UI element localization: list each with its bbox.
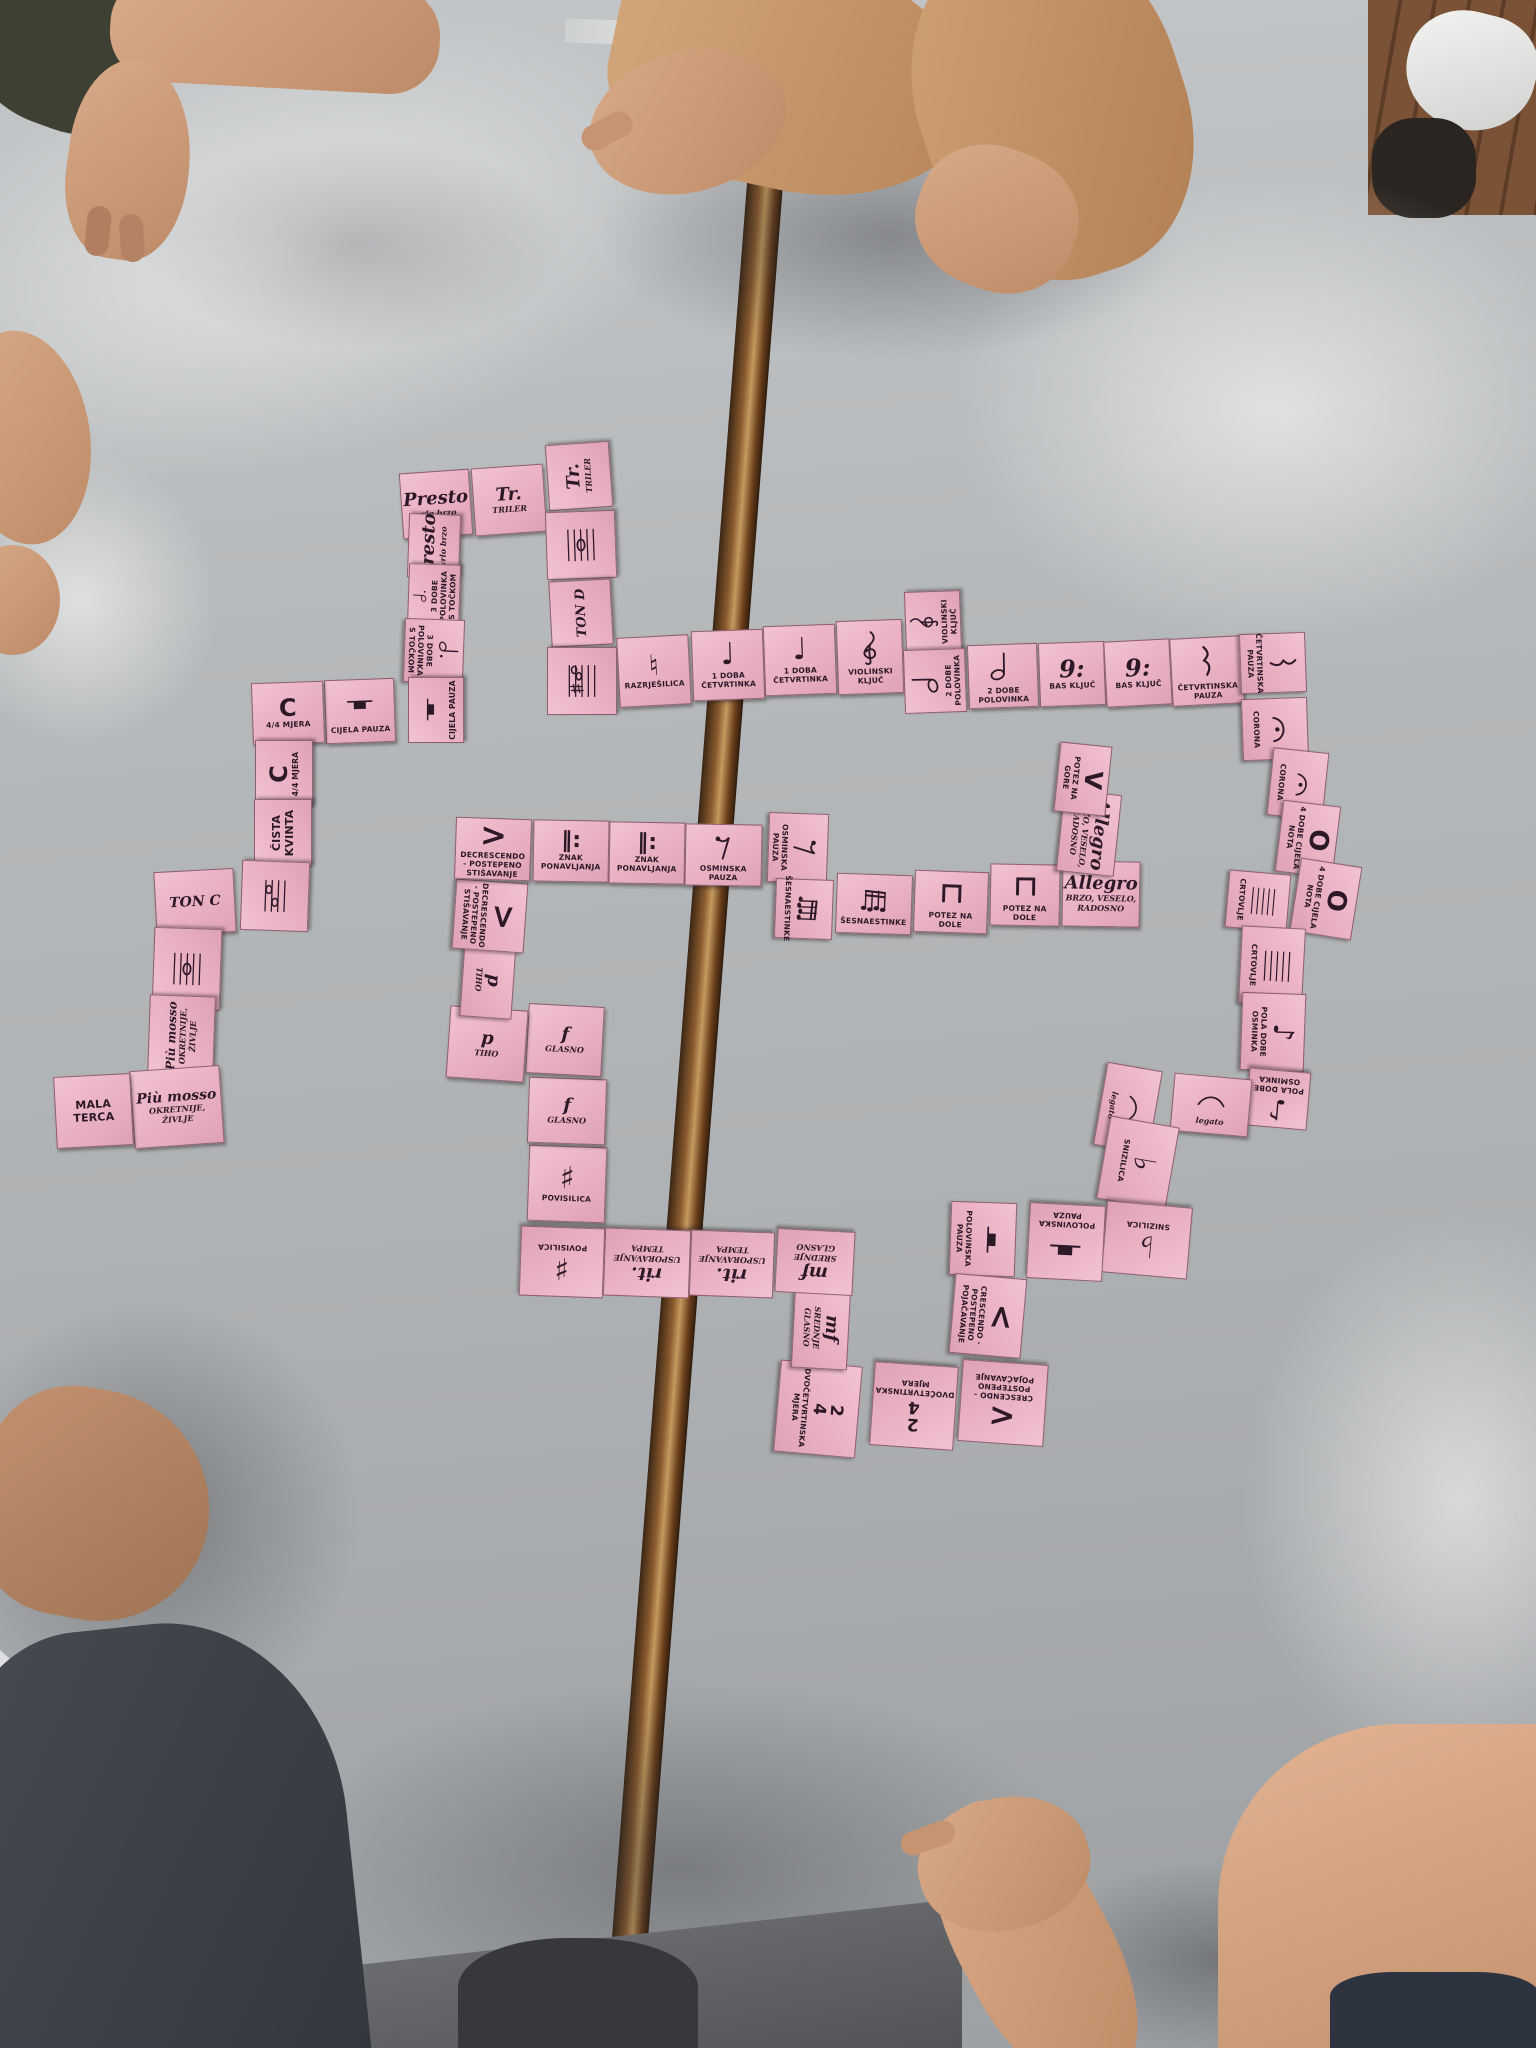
card-subtext: USPORAVANJE TEMPA (693, 1244, 772, 1265)
domino-card-sesnaestinke-2: ŠESNAESTINKE (835, 873, 913, 936)
card-label: ŠESNAESTINKE (782, 875, 793, 941)
sixteenths-icon (792, 893, 825, 926)
domino-card-povisilica-2: ♯POVISILICA (527, 1145, 608, 1224)
card-label: 3 DOBE POLOVINKA S TOČKOM (406, 621, 435, 680)
domino-card-potez-na-dole-2: POTEZ NA DOLE (989, 863, 1060, 926)
card-subtext: TIHO (474, 1048, 499, 1059)
domino-card-cetvrtinka-1: ♩1 DOBA ČETVRTINKA (691, 629, 765, 701)
card-subtext: vrlo brzo (438, 526, 449, 566)
card-label: ČETVRTINSKA PAUZA (1245, 633, 1265, 694)
quarter-note-icon: ♩ (720, 641, 735, 670)
sixteenths-icon (857, 881, 892, 916)
domino-card-mf-2: mfSREDNJE GLASNO (774, 1228, 855, 1296)
flat-icon: ♭ (1138, 1230, 1155, 1260)
domino-card-mjera-44-2: C4/4 MJERA (255, 740, 313, 808)
card-label: POTEZ NA DOLE (993, 903, 1057, 922)
fermata-icon (1262, 711, 1298, 747)
card-label: ZNAK PONAVLJANJA (612, 854, 682, 873)
card-subtext: GLASNO (545, 1044, 584, 1055)
half-rest-icon (1043, 1229, 1088, 1274)
card-label: MALA TERCA (57, 1096, 129, 1126)
card-label: SNIZILICA (1126, 1219, 1170, 1232)
two-four-icon: 24 (906, 1398, 920, 1433)
domino-card-violinski-kljuc-1: VIOLINSKI KLJUČ (836, 619, 905, 695)
domino-card-polovinska-pauza-1: POLOVINSKA PAUZA (1026, 1202, 1106, 1282)
domino-card-bas-kljuc-2: 9:BAS KLJUČ (1103, 638, 1172, 707)
domino-card-piu-mosso-2: Più mossoOKRETNIJE, ŽIVLJE (129, 1065, 224, 1149)
card-label: POVISILICA (542, 1193, 592, 1204)
domino-card-povisilica-1: ♯POVISILICA (519, 1226, 605, 1299)
card-label: ČISTA KVINTA (270, 802, 296, 864)
flat-icon: ♭ (1128, 1154, 1159, 1173)
repeat-icon: ‖: (637, 833, 657, 854)
common-time-icon: C (279, 696, 297, 719)
card-subtext: SREDNJE GLASNO (779, 1241, 852, 1263)
card-label: POLOVINSKA PAUZA (1032, 1209, 1103, 1231)
domino-card-polovinska-pauza-2: POLOVINSKA PAUZA (949, 1201, 1018, 1277)
card-term: TON D (573, 588, 589, 637)
card-term: mf (821, 1315, 840, 1343)
card-label: CIJELA PAUZA (448, 680, 457, 740)
domino-card-cista-kvinta: ČISTA KVINTA (254, 799, 312, 867)
card-subtext: legato (1195, 1116, 1224, 1128)
domino-card-bas-kljuc-1: 9:BAS KLJUČ (1038, 641, 1106, 707)
card-label: POLA DOBE OSMINKA (1251, 1074, 1308, 1097)
domino-card-sesnaestinke-1: ŠESNAESTINKE (774, 878, 834, 940)
dotted-half-icon (411, 581, 430, 611)
card-subtext: OKRETNIJE, ŽIVLJE (178, 998, 199, 1074)
domino-card-osminska-pauza-1: OSMINSKA PAUZA (684, 823, 762, 886)
domino-card-rit-2: rit.USPORAVANJE TEMPA (603, 1228, 691, 1299)
domino-card-cijela-pauza-1: CIJELA PAUZA (408, 677, 464, 743)
repeat-icon: ‖: (561, 831, 581, 852)
card-label: CRESCENDO - POSTEPENO POJAČAVANJE (963, 1371, 1045, 1404)
domino-card-cetvrtinka-2: ♩1 DOBA ČETVRTINKA (763, 624, 837, 696)
domino-card-nota-na-crtovlju-1 (545, 510, 617, 580)
card-label: VIOLINSKI KLJUČ (939, 593, 959, 650)
treble-clef-icon (907, 606, 939, 638)
domino-card-decrescendo-2: >DECRESCENDO - POSTEPENO STIŠAVANJE (454, 817, 532, 882)
card-label: RAZRJEŠILICA (624, 679, 685, 691)
sharp-icon: ♯ (554, 1253, 570, 1282)
eighth-note-icon: ♪ (1269, 1023, 1296, 1042)
card-term: rit. (716, 1264, 748, 1283)
whole-note-staff-icon (561, 525, 600, 564)
domino-card-mf-1: mfSREDNJE GLASNO (791, 1286, 851, 1371)
card-label: POTEZ NA DOLE (916, 910, 985, 930)
card-label: POVISILICA (538, 1242, 588, 1253)
domino-card-polovinka-s-tockom-2: 3 DOBE POLOVINKA S TOČKOM (403, 618, 465, 684)
domino-card-predznaci (547, 647, 617, 715)
card-label: DECRESCENDO - POSTEPENO STIŠAVANJE (459, 882, 490, 949)
domino-card-glasno-1: fGLASNO (527, 1077, 607, 1146)
card-label: BAS KLJUČ (1049, 681, 1096, 692)
card-label: ZNAK PONAVLJANJA (536, 852, 606, 871)
quarter-rest-icon (1187, 642, 1227, 682)
sharp-icon: ♯ (559, 1165, 575, 1194)
card-label: 1 DOBA ČETVRTINKA (695, 670, 762, 690)
eighth-rest-icon (790, 831, 825, 866)
card-label: 4/4 MJERA (291, 752, 300, 797)
domino-card-triler-1: Tr.TRILER (471, 464, 548, 537)
card-label: VIOLINSKI KLJUČ (840, 666, 901, 686)
photo-classroom-table: Prestovrlo brzoTr.TRILERTr.TRILERTON D♮R… (0, 0, 1536, 2048)
domino-card-triler-2: Tr.TRILER (545, 441, 613, 511)
card-label: ČETVRTINSKA PAUZA (1175, 680, 1242, 701)
domino-card-potez-na-gore: VPOTEZ NA GORE (1053, 741, 1112, 816)
domino-card-snizilica-2: ♭SNIZILICA (1101, 1200, 1193, 1279)
domino-card-cetvrtinska-pauza-2: ČETVRTINSKA PAUZA (1239, 632, 1307, 694)
domino-card-glasno-2: fGLASNO (525, 1003, 605, 1077)
card-subtext: TRILER (492, 504, 527, 516)
domino-card-znak-ponavljanja-1: ‖:ZNAK PONAVLJANJA (532, 819, 609, 882)
card-subtext: TIHO (473, 967, 484, 992)
domino-card-crtovlje-1: CRTOVLJE (1225, 869, 1292, 932)
whole-note-icon: O (1321, 888, 1349, 914)
card-subtext: USPORAVANJE TEMPA (607, 1243, 688, 1264)
card-label: ŠESNAESTINKE (840, 916, 906, 927)
cards-layer: Prestovrlo brzoTr.TRILERTr.TRILERTON D♮R… (0, 0, 1536, 2048)
card-label: 2 DOBE POLOVINKA (943, 651, 963, 710)
domino-card-mjera-44-1: C4/4 MJERA (251, 681, 325, 745)
bass-clef-icon: 9: (1059, 657, 1085, 681)
domino-card-osminka-1: ♪POLA DOBE OSMINKA (1240, 992, 1307, 1072)
half-note-icon (984, 648, 1021, 685)
card-label: DECRESCENDO - POSTEPENO STIŠAVANJE (457, 850, 528, 879)
card-label: CIJELA PAUZA (331, 724, 391, 735)
card-label: DVOČETVRTINSKA MJERA (788, 1364, 813, 1451)
card-subtext: GLASNO (547, 1115, 586, 1126)
domino-card-dvocetvrtinska-mjera-2: 24DVOČETVRTINSKA MJERA (773, 1360, 863, 1459)
staff-icon (1246, 884, 1281, 919)
domino-card-ton-c: TON C (153, 868, 236, 936)
domino-card-legato-1: legato (1170, 1073, 1253, 1138)
up-bow-icon: V (1080, 770, 1105, 791)
card-term: Allegro (1064, 875, 1137, 894)
quarter-note-icon: ♩ (792, 636, 807, 665)
whole-note-staff-icon (167, 949, 206, 988)
domino-card-cijela-pauza-2: CIJELA PAUZA (324, 678, 396, 744)
domino-card-polovinka-2: 2 DOBE POLOVINKA (967, 643, 1039, 709)
interval-icon (255, 876, 294, 915)
card-label: DVOČETVRTINSKA MJERA (875, 1377, 955, 1400)
card-label: 4/4 MJERA (266, 720, 311, 731)
domino-card-polovinka-1: 2 DOBE POLOVINKA (903, 648, 967, 714)
domino-card-snizilica-1: ♭SNIZILICA (1096, 1116, 1180, 1211)
domino-card-znak-ponavljanja-2: ‖:ZNAK PONAVLJANJA (608, 821, 685, 884)
card-label: BAS KLJUČ (1115, 679, 1162, 690)
card-label: OSMINSKA PAUZA (770, 815, 790, 880)
domino-card-potez-na-dole-1: POTEZ NA DOLE (913, 870, 989, 935)
decrescendo-icon: > (488, 903, 520, 932)
sharps-staff-icon (563, 662, 601, 700)
domino-card-decrescendo-1: >DECRESCENDO - POSTEPENO STIŠAVANJE (452, 879, 529, 954)
card-term: TON C (169, 894, 221, 911)
domino-card-crescendo-2: <CRESCENDO - POSTEPENO POJAČAVANJE (957, 1359, 1049, 1447)
card-subtext: BRZO, VESELO, RADOSNO (1065, 894, 1137, 914)
half-note-icon (907, 663, 943, 699)
down-bow-icon (933, 874, 969, 910)
half-rest-icon (973, 1220, 1011, 1258)
natural-icon: ♮ (648, 652, 659, 679)
card-subtext: SREDNJE GLASNO (800, 1289, 822, 1366)
card-term: Presto (403, 488, 469, 510)
card-label: POLOVINSKA PAUZA (954, 1204, 974, 1273)
crescendo-icon: < (986, 1303, 1019, 1332)
card-label: OSMINSKA PAUZA (688, 863, 759, 882)
card-term: mf (801, 1262, 829, 1281)
card-term: p (484, 973, 503, 987)
domino-card-ton-d: TON D (548, 578, 613, 647)
card-label: 2 DOBE POLOVINKA (971, 684, 1036, 704)
card-label: 1 DOBA ČETVRTINKA (767, 665, 834, 685)
treble-clef-icon (851, 628, 889, 666)
dotted-half-icon (434, 634, 461, 669)
domino-card-interval-note (240, 860, 310, 932)
card-term: Tr. (564, 463, 584, 490)
domino-card-osminka-2: ♪POLA DOBE OSMINKA (1245, 1067, 1312, 1130)
card-label: POTEZ NA GORE (1059, 745, 1084, 811)
domino-card-osminska-pauza-2: OSMINSKA PAUZA (767, 812, 829, 884)
common-time-icon: C (268, 765, 291, 783)
whole-rest-icon (341, 687, 378, 724)
domino-card-violinski-kljuc-2: VIOLINSKI KLJUČ (904, 590, 962, 654)
slur-icon (1194, 1083, 1229, 1118)
domino-card-dvocetvrtinska-mjera-1: 24DVOČETVRTINSKA MJERA (869, 1361, 959, 1451)
card-term: f (563, 1097, 571, 1115)
domino-card-crescendo-1: <CRESCENDO - POSTEPENO POJAČAVANJE (949, 1273, 1028, 1359)
whole-note-icon: O (1304, 828, 1331, 853)
card-subtext: TRILER (583, 458, 595, 493)
two-four-icon: 24 (810, 1402, 845, 1417)
eighth-rest-icon (706, 828, 742, 864)
quarter-rest-icon (1265, 645, 1300, 680)
card-label: 3 DOBE POLOVINKA S TOČKOM (429, 567, 458, 626)
eighth-note-icon: ♪ (1267, 1094, 1287, 1122)
domino-card-rit-1: rit.USPORAVANJE TEMPA (689, 1230, 775, 1299)
staff-icon (1258, 947, 1296, 985)
crescendo-icon: < (988, 1401, 1017, 1433)
bass-clef-icon: 9: (1124, 656, 1151, 680)
whole-rest-icon (416, 695, 447, 726)
decrescendo-icon: > (480, 819, 508, 850)
down-bow-icon (1007, 868, 1043, 904)
fermata-icon (1286, 767, 1320, 801)
domino-card-mala-terca: MALA TERCA (53, 1073, 134, 1149)
card-term: p (480, 1030, 494, 1049)
card-term: f (561, 1026, 570, 1044)
card-term: Tr. (495, 485, 522, 505)
domino-card-razrjesilica: ♮RAZRJEŠILICA (616, 634, 692, 708)
domino-card-cetvrtinska-pauza-1: ČETVRTINSKA PAUZA (1169, 635, 1244, 707)
card-label: CRESCENDO - POSTEPENO POJAČAVANJE (956, 1277, 989, 1353)
card-term: rit. (631, 1263, 663, 1282)
card-label: CORONA (1252, 711, 1262, 749)
card-label: POLA DOBE OSMINKA (1249, 995, 1270, 1068)
